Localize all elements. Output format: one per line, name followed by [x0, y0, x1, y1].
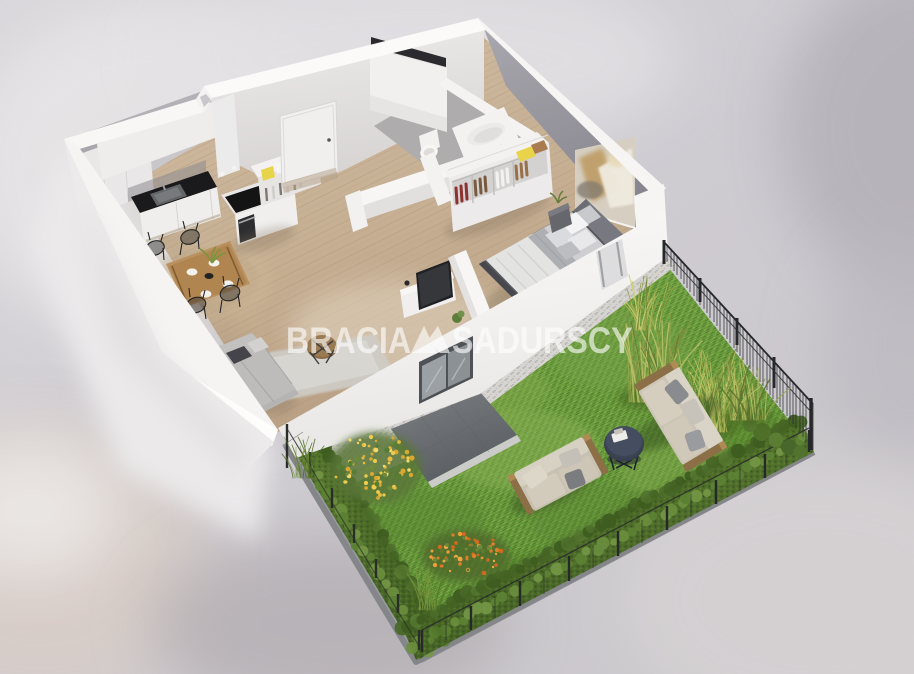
svg-text:SADURSCY: SADURSCY	[452, 321, 633, 362]
svg-text:BRACIA: BRACIA	[286, 321, 411, 362]
